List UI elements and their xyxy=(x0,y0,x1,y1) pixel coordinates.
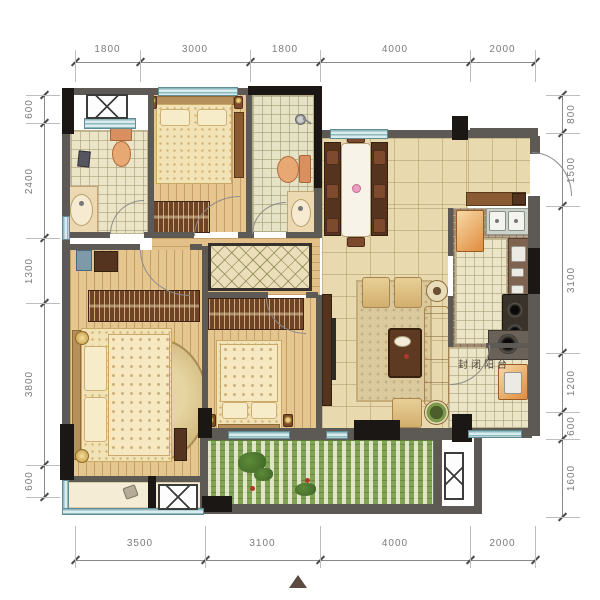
right-dimension-value: 1600 xyxy=(566,456,578,500)
right-extension xyxy=(546,517,580,518)
right-dimension-value: 600 xyxy=(566,404,578,448)
right-dimension-value: 800 xyxy=(566,92,578,136)
right-extension xyxy=(546,353,580,354)
floorplan-canvas: 1800300018004000200035003100400020006002… xyxy=(0,0,600,600)
bottom-dimension-value: 2000 xyxy=(473,538,533,550)
top-extension xyxy=(320,50,321,82)
left-extension xyxy=(26,238,60,239)
top-dimension-line xyxy=(75,62,535,63)
top-dimension-value: 3000 xyxy=(165,44,225,56)
top-extension xyxy=(250,50,251,82)
bottom-dimension-value: 4000 xyxy=(365,538,425,550)
right-extension xyxy=(546,206,580,207)
bottom-extension xyxy=(320,526,321,568)
bottom-dimension-value: 3100 xyxy=(233,538,293,550)
right-dimension-value: 1500 xyxy=(566,148,578,192)
right-dimension-line xyxy=(562,95,563,517)
left-dimension-value: 600 xyxy=(24,87,36,131)
bottom-extension xyxy=(75,526,76,568)
top-dimension-value: 1800 xyxy=(255,44,315,56)
top-extension xyxy=(140,50,141,82)
north-arrow-icon xyxy=(289,575,307,588)
left-dimension-value: 600 xyxy=(24,459,36,503)
bottom-dimension-line xyxy=(75,560,535,561)
bottom-extension xyxy=(205,526,206,568)
top-dimension-value: 4000 xyxy=(365,44,425,56)
left-dimension-value: 2400 xyxy=(24,159,36,203)
left-dimension-value: 3800 xyxy=(24,362,36,406)
top-extension xyxy=(75,50,76,82)
top-extension xyxy=(470,50,471,82)
top-dimension-value: 1800 xyxy=(78,44,138,56)
enclosed-balcony-label: 封闭阳台 xyxy=(458,356,530,371)
left-dimension-line xyxy=(44,95,45,497)
left-extension xyxy=(26,303,60,304)
dimension-annotations: 1800300018004000200035003100400020006002… xyxy=(0,0,600,600)
bottom-dimension-value: 3500 xyxy=(110,538,170,550)
bottom-extension xyxy=(535,526,536,568)
left-dimension-value: 1300 xyxy=(24,249,36,293)
bottom-extension xyxy=(470,526,471,568)
top-dimension-value: 2000 xyxy=(473,44,533,56)
right-dimension-value: 1200 xyxy=(566,361,578,405)
top-extension xyxy=(535,50,536,82)
right-dimension-value: 3100 xyxy=(566,258,578,302)
